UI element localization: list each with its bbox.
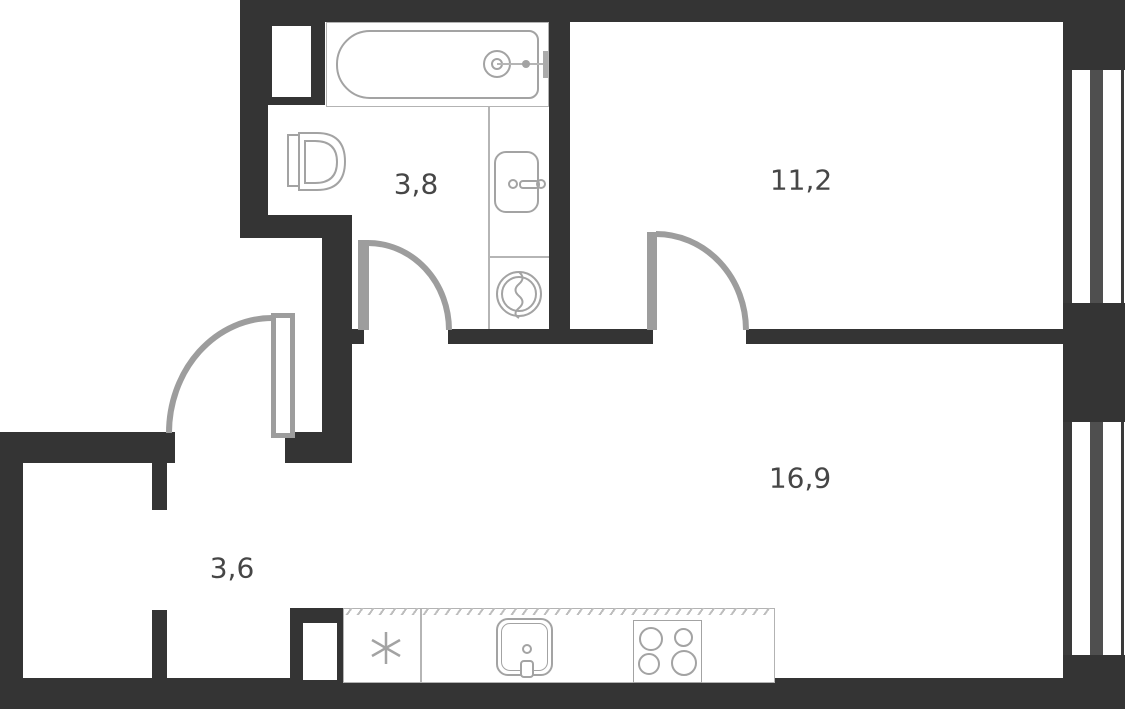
- kitchen-counter-edge-hatch: [344, 608, 774, 615]
- bathroom-sink-tap-cap: [536, 179, 546, 189]
- wall-right-mid-block: [1063, 303, 1125, 422]
- stove-burner-bottom-left: [638, 653, 660, 675]
- bathroom-sink-tap-base: [508, 179, 518, 189]
- bedroom-door-leaf: [647, 232, 657, 330]
- floor-plan: 3,8 11,2 16,9 3,6: [0, 0, 1125, 709]
- wall-bathroom-bedroom-divider: [549, 22, 570, 329]
- stove-burner-bottom-right: [671, 650, 697, 676]
- hallway-area-label: 3,6: [210, 552, 255, 585]
- bedroom-window-outer-line: [1121, 70, 1124, 303]
- kitchen-counter: [343, 608, 775, 683]
- vent-shaft-bathroom: [272, 26, 311, 97]
- wall-entry-right: [285, 432, 352, 463]
- wall-entry-jamb-upper: [152, 463, 167, 510]
- wall-top-right-corner: [1063, 22, 1125, 70]
- bedroom-door-swing-arc: [656, 234, 746, 330]
- vent-shaft-kitchen: [303, 623, 337, 680]
- bathroom-partition-line-vertical: [488, 107, 490, 329]
- wall-entry-left: [0, 432, 175, 463]
- stove-burner-top-left: [639, 627, 663, 651]
- stove-burner-top-right: [674, 628, 693, 647]
- wall-bathroom-left-mid: [240, 105, 268, 215]
- wall-corner-block: [240, 215, 352, 238]
- bedroom-window-mullion: [1090, 70, 1103, 303]
- bathtub-wall-bracket: [543, 51, 548, 78]
- entry-door-swing-arc: [169, 318, 272, 433]
- toilet-bowl-outer: [299, 133, 345, 190]
- bathtub-faucet-knob: [522, 60, 530, 68]
- wall-mid-right: [746, 329, 1063, 344]
- kitchen-sink-drain: [522, 644, 532, 654]
- toilet-tank: [287, 134, 300, 187]
- kitchen-sink-tap: [520, 660, 534, 678]
- bathroom-door-leaf: [358, 240, 369, 330]
- toilet-bowl-inner: [305, 141, 337, 183]
- wall-top: [240, 0, 1125, 22]
- wall-mid-left: [448, 329, 653, 344]
- bathroom-area-label: 3,8: [394, 168, 439, 201]
- living-window-inner-line: [1063, 422, 1072, 655]
- washing-machine-drum-inner: [501, 276, 537, 312]
- bathroom-door-swing-arc: [368, 243, 449, 330]
- entry-door-leaf: [271, 313, 295, 438]
- bedroom-window-inner-line: [1063, 70, 1072, 303]
- wall-hall-vertical: [322, 238, 352, 463]
- kitchen-counter-divider: [420, 609, 422, 682]
- bathroom-partition-line-horizontal: [489, 256, 549, 258]
- living-window-outer-line: [1121, 422, 1124, 655]
- living-window-mullion: [1090, 422, 1103, 655]
- wall-entry-jamb-lower: [152, 610, 167, 678]
- bedroom-area-label: 11,2: [770, 164, 832, 197]
- wall-bathroom-bottom-stub: [352, 329, 364, 344]
- kitchen-living-area-label: 16,9: [769, 462, 831, 495]
- wall-left: [0, 432, 23, 709]
